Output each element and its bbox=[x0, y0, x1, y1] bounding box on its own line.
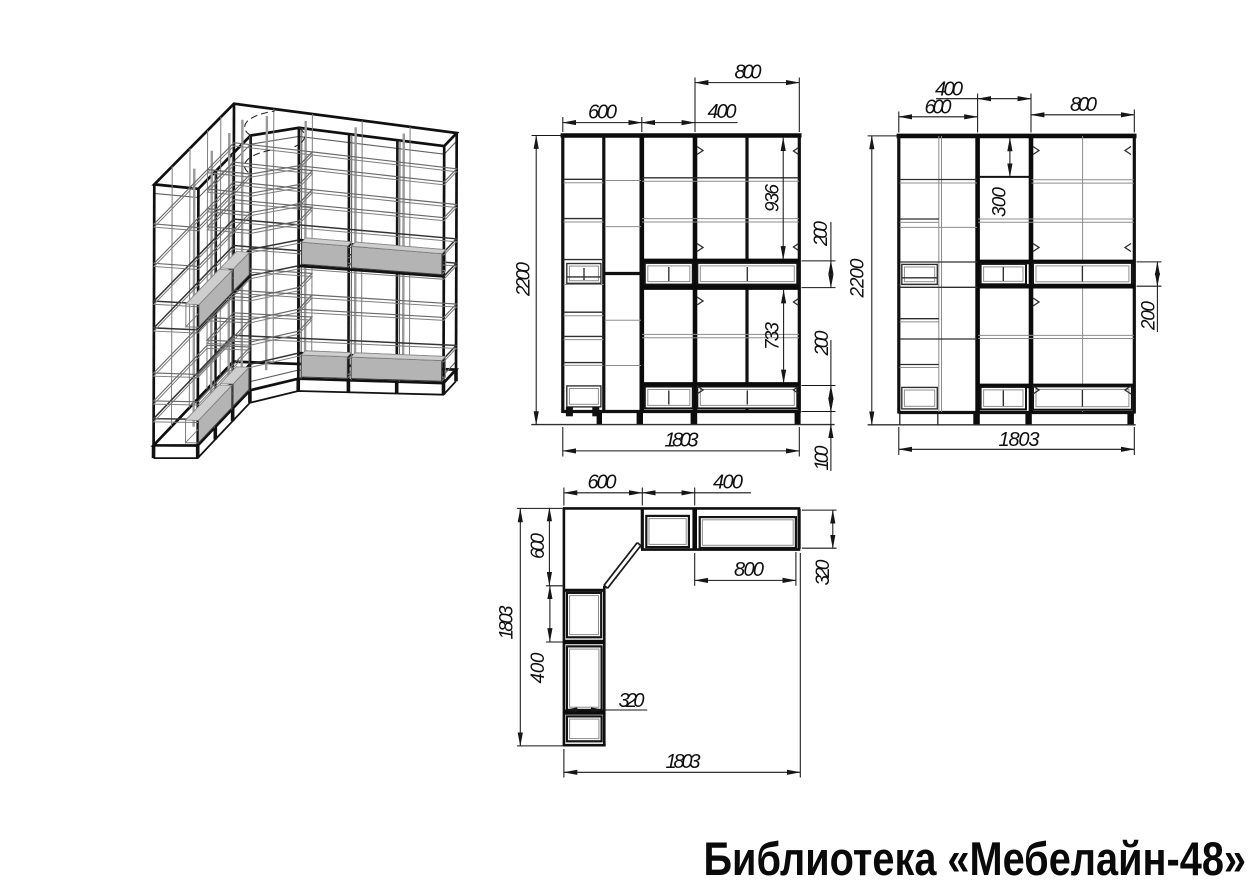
svg-text:300: 300 bbox=[990, 187, 1011, 217]
svg-text:600: 600 bbox=[925, 97, 952, 119]
svg-text:600: 600 bbox=[528, 533, 549, 559]
svg-text:800: 800 bbox=[735, 62, 762, 84]
svg-text:200: 200 bbox=[811, 221, 832, 247]
svg-text:800: 800 bbox=[734, 559, 764, 581]
svg-text:936: 936 bbox=[763, 184, 784, 212]
svg-text:200: 200 bbox=[1139, 301, 1160, 331]
svg-text:400: 400 bbox=[708, 101, 737, 123]
svg-text:800: 800 bbox=[1070, 94, 1097, 116]
svg-text:2200: 2200 bbox=[514, 262, 535, 297]
svg-text:2200: 2200 bbox=[848, 258, 869, 298]
svg-text:1803: 1803 bbox=[665, 430, 699, 452]
svg-text:100: 100 bbox=[812, 445, 833, 470]
svg-text:600: 600 bbox=[588, 472, 617, 494]
svg-text:1803: 1803 bbox=[999, 429, 1040, 451]
svg-text:400: 400 bbox=[713, 472, 743, 494]
svg-text:200: 200 bbox=[812, 330, 833, 356]
svg-text:1803: 1803 bbox=[666, 751, 701, 773]
svg-text:1803: 1803 bbox=[497, 605, 518, 639]
svg-text:320: 320 bbox=[619, 690, 645, 712]
svg-text:400: 400 bbox=[528, 652, 549, 683]
svg-text:600: 600 bbox=[588, 102, 617, 124]
svg-text:733: 733 bbox=[763, 322, 784, 350]
svg-text:320: 320 bbox=[813, 559, 834, 585]
